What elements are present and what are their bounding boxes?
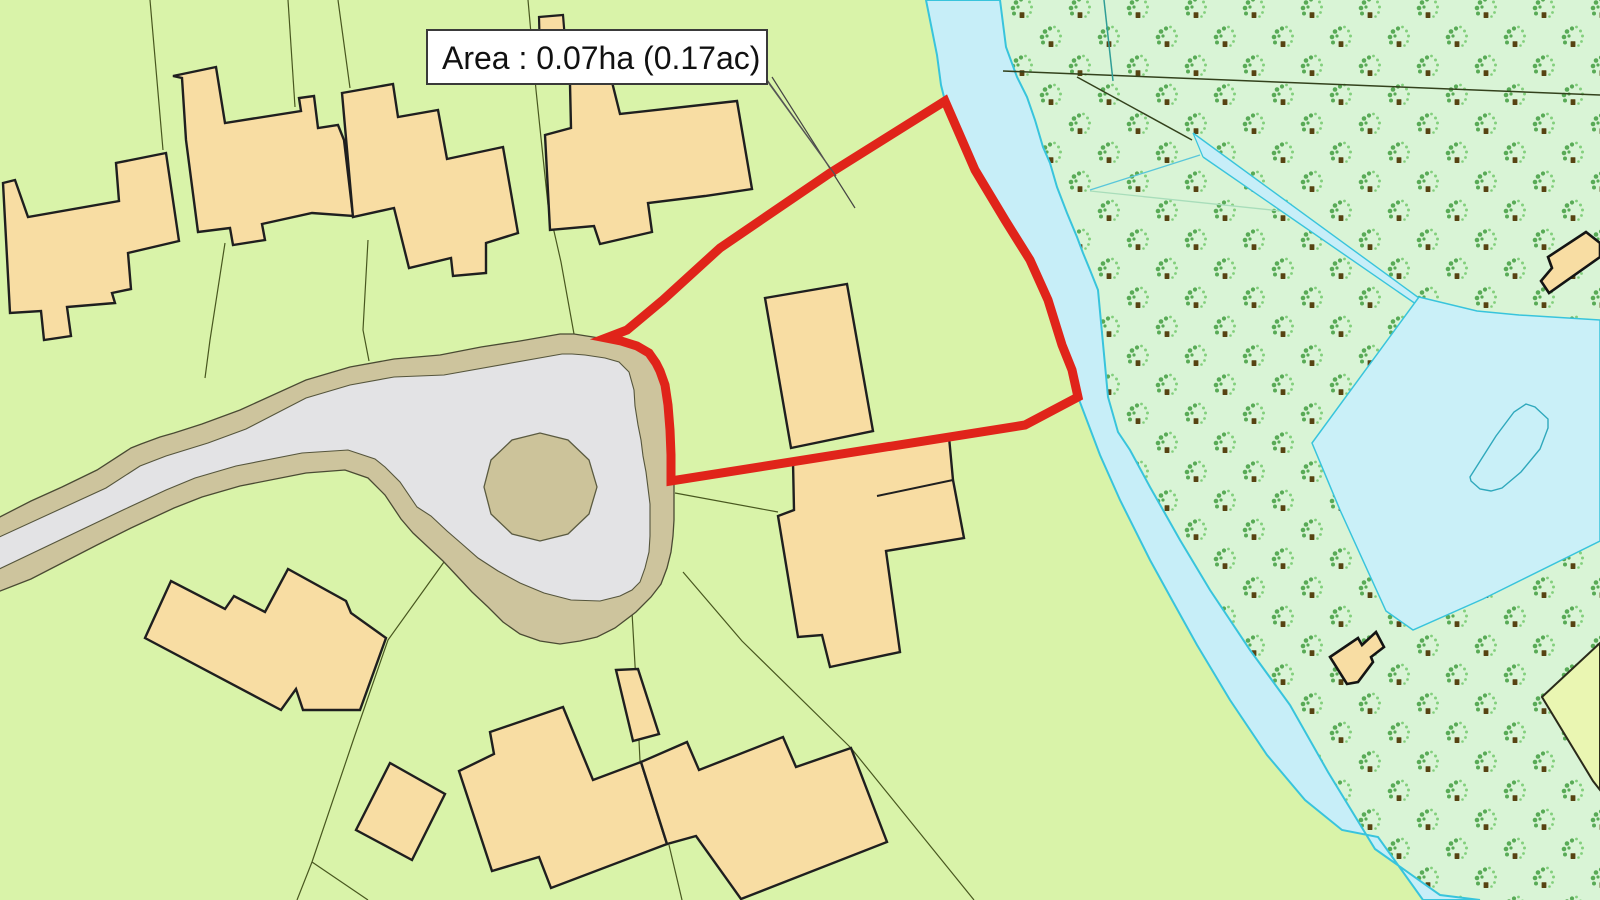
svg-text:Area : 0.07ha (0.17ac): Area : 0.07ha (0.17ac) (442, 40, 760, 76)
